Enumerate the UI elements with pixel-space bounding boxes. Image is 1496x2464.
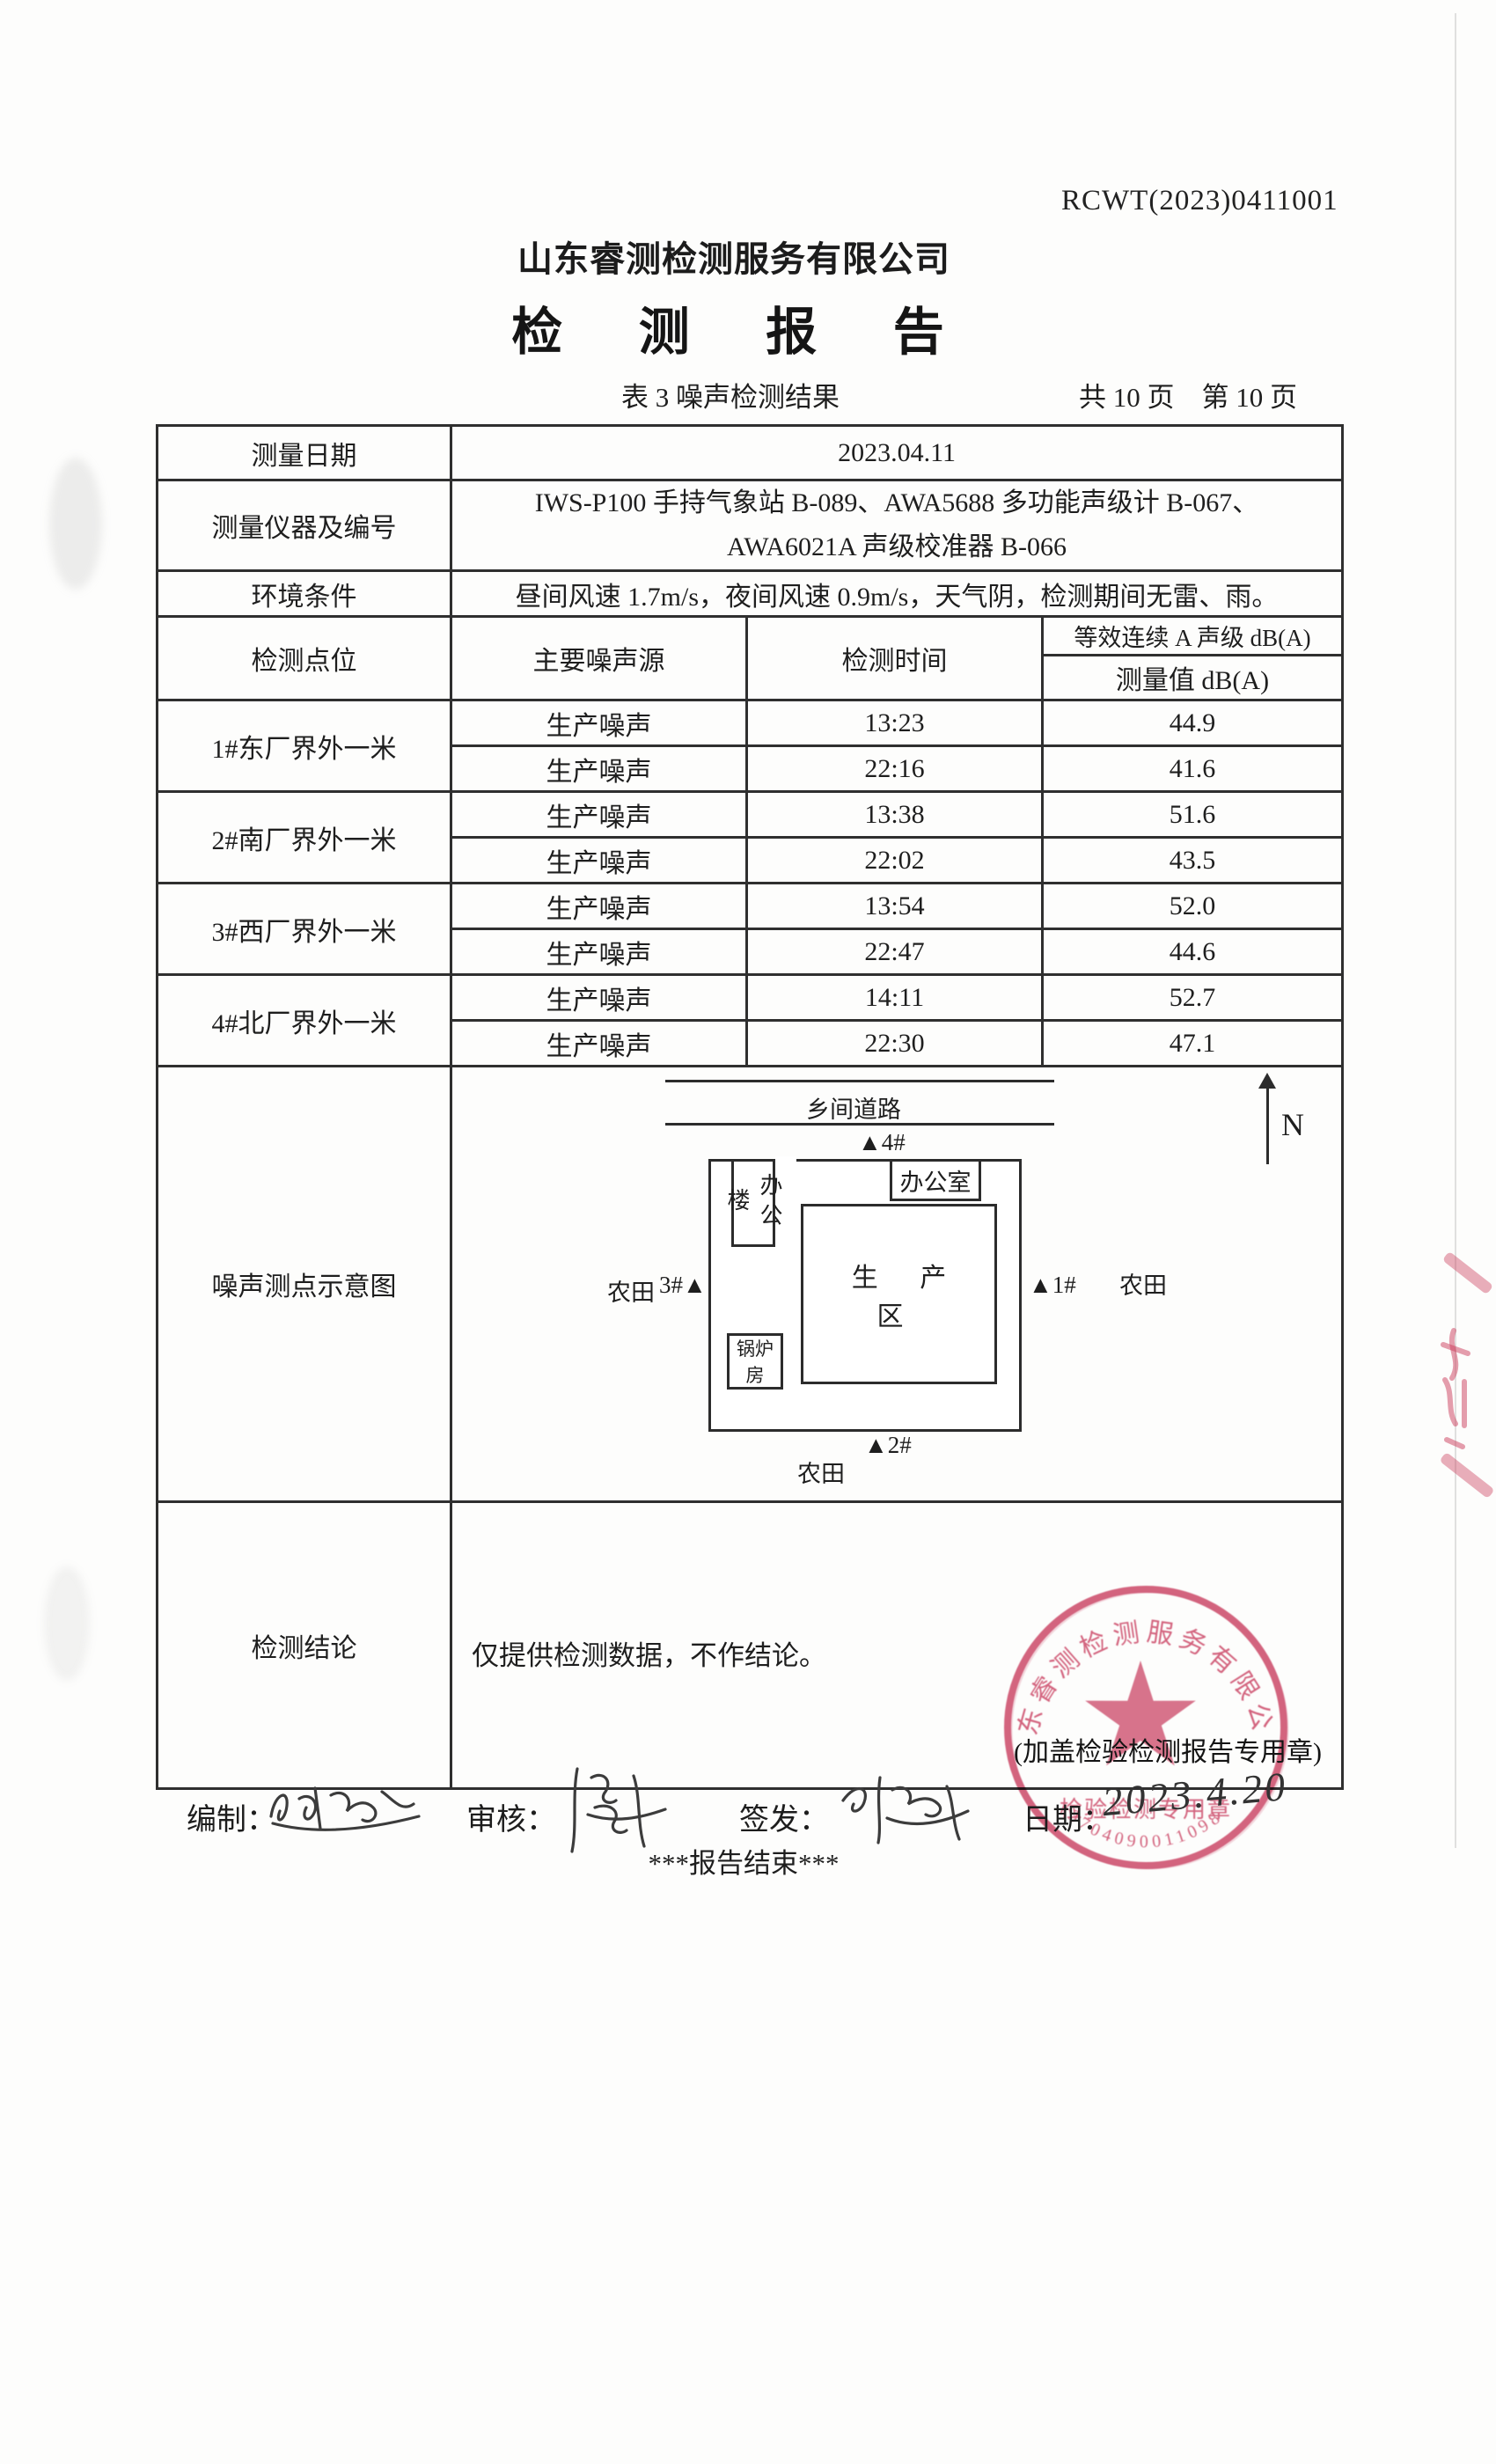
- source-cell: 生产噪声: [451, 792, 747, 838]
- scan-edge-line: [1455, 13, 1456, 1848]
- point2-marker: ▲2#: [864, 1432, 912, 1459]
- office-building-box: 办公楼: [731, 1159, 775, 1247]
- site-plan-diagram: 乡间道路 ▲4# 办公楼 办公室 生 产 区 锅炉房 3#▲ ▲1#: [452, 1067, 1341, 1500]
- site-cell: 1#东厂界外一米: [158, 700, 451, 792]
- source-cell: 生产噪声: [451, 929, 747, 975]
- report-end-text: ***报告结束***: [563, 1841, 924, 1881]
- road-line-top: [665, 1080, 1054, 1082]
- date-value-text: 2023.4.20: [1100, 1765, 1289, 1824]
- page-indicator: 共 10 页 第 10 页: [1079, 375, 1297, 414]
- value-cell: 41.6: [1043, 746, 1343, 792]
- production-area-box: 生 产 区: [801, 1204, 997, 1384]
- source-cell: 生产噪声: [451, 700, 747, 746]
- time-cell: 22:47: [747, 929, 1043, 975]
- report-number: RCWT(2023)0411001: [1061, 185, 1338, 217]
- boiler-room-box: 锅炉房: [727, 1333, 783, 1390]
- reviewed-label: 审核：: [466, 1795, 556, 1838]
- instrument-value: IWS-P100 手持气象站 B-089、AWA5688 多功能声级计 B-06…: [451, 480, 1343, 571]
- production-area-label: 生 产 区: [803, 1256, 994, 1333]
- farmland-left-label: 农田: [607, 1273, 655, 1308]
- value-cell: 44.9: [1043, 700, 1343, 746]
- value-cell: 43.5: [1043, 838, 1343, 884]
- road-label: 乡间道路: [766, 1090, 942, 1125]
- value-cell: 52.7: [1043, 975, 1343, 1021]
- time-cell: 13:23: [747, 700, 1043, 746]
- measure-date-label: 测量日期: [158, 426, 451, 480]
- header-leq: 等效连续 A 声级 dB(A): [1043, 617, 1343, 656]
- value-cell: 47.1: [1043, 1021, 1343, 1067]
- value-cell: 44.6: [1043, 929, 1343, 975]
- farmland-bottom-label: 农田: [797, 1455, 845, 1489]
- time-cell: 13:54: [747, 884, 1043, 929]
- site-cell: 4#北厂界外一米: [158, 975, 451, 1067]
- instrument-label: 测量仪器及编号: [158, 480, 451, 571]
- header-measured-value: 测量值 dB(A): [1043, 656, 1343, 700]
- issued-label: 签发：: [739, 1795, 829, 1838]
- source-cell: 生产噪声: [451, 838, 747, 884]
- header-point: 检测点位: [158, 617, 451, 700]
- site-cell: 3#西厂界外一米: [158, 884, 451, 975]
- boiler-room-label: 锅炉房: [730, 1335, 781, 1388]
- conclusion-label: 检测结论: [158, 1502, 451, 1789]
- time-cell: 22:16: [747, 746, 1043, 792]
- source-cell: 生产噪声: [451, 746, 747, 792]
- environment-value: 昼间风速 1.7m/s，夜间风速 0.9m/s，天气阴，检测期间无雷、雨。: [451, 571, 1343, 617]
- north-arrow-line: [1266, 1087, 1269, 1164]
- source-cell: 生产噪声: [451, 884, 747, 929]
- time-cell: 22:30: [747, 1021, 1043, 1067]
- stamp-note: (加盖检验检测报告专用章): [1014, 1730, 1322, 1769]
- scan-smudge: [44, 1566, 90, 1681]
- north-label: N: [1281, 1106, 1304, 1143]
- road-line-bottom: [665, 1123, 1054, 1126]
- time-cell: 22:02: [747, 838, 1043, 884]
- office-building-label: 办公楼: [721, 1162, 786, 1244]
- page-title: 检 测 报 告: [112, 290, 1344, 364]
- value-cell: 52.0: [1043, 884, 1343, 929]
- instrument-line2: AWA6021A 声级校准器 B-066: [452, 525, 1341, 569]
- point4-marker: ▲4#: [858, 1129, 906, 1156]
- office-label: 办公室: [900, 1163, 972, 1198]
- header-source: 主要噪声源: [451, 617, 747, 700]
- measure-date-value: 2023.04.11: [451, 426, 1343, 480]
- date-handwritten: 2023.4.20: [1098, 1765, 1292, 1836]
- environment-label: 环境条件: [158, 571, 451, 617]
- diagram-cell: 乡间道路 ▲4# 办公楼 办公室 生 产 区 锅炉房 3#▲ ▲1#: [451, 1067, 1343, 1502]
- prepared-label: 编制：: [187, 1795, 276, 1838]
- table-caption: 表 3 噪声检测结果: [621, 375, 840, 414]
- office-box: 办公室: [890, 1159, 981, 1201]
- header-time: 检测时间: [747, 617, 1043, 700]
- value-cell: 51.6: [1043, 792, 1343, 838]
- company-name: 山东睿测检测服务有限公司: [118, 231, 1350, 282]
- point3-marker: 3#▲: [659, 1272, 707, 1299]
- prepared-signature: [264, 1771, 427, 1852]
- source-cell: 生产噪声: [451, 975, 747, 1021]
- time-cell: 13:38: [747, 792, 1043, 838]
- instrument-line1: IWS-P100 手持气象站 B-089、AWA5688 多功能声级计 B-06…: [452, 481, 1341, 525]
- site-cell: 2#南厂界外一米: [158, 792, 451, 884]
- edge-seal-fragment: [1427, 1250, 1496, 1522]
- point1-marker: ▲1#: [1029, 1272, 1076, 1299]
- time-cell: 14:11: [747, 975, 1043, 1021]
- scan-smudge: [49, 458, 102, 590]
- diagram-row-label: 噪声测点示意图: [158, 1067, 451, 1502]
- source-cell: 生产噪声: [451, 1021, 747, 1067]
- farmland-right-label: 农田: [1119, 1266, 1167, 1301]
